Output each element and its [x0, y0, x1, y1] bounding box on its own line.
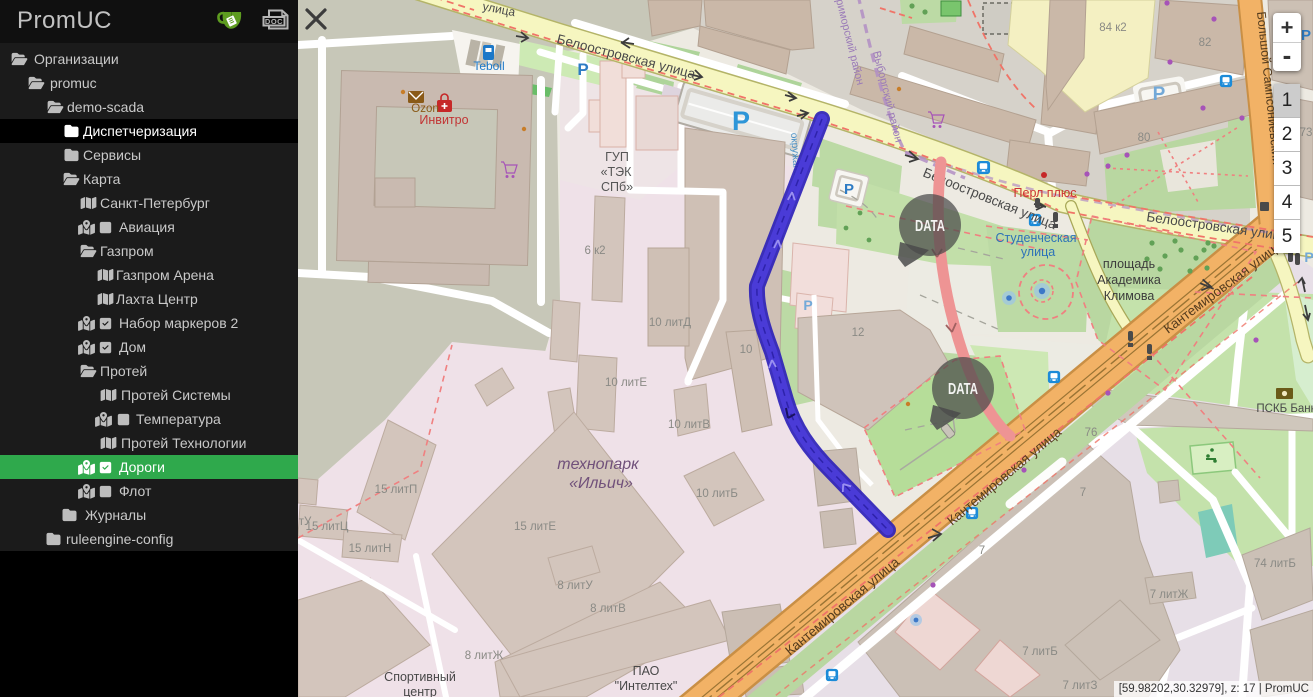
- svg-text:центр: центр: [403, 685, 437, 697]
- svg-text:82: 82: [1199, 37, 1212, 49]
- svg-text:73: 73: [1300, 127, 1313, 139]
- svg-text:P: P: [1304, 249, 1313, 265]
- svg-text:P: P: [1301, 27, 1311, 44]
- svg-text:Академика: Академика: [1097, 273, 1161, 287]
- svg-text:74 литБ: 74 литБ: [1254, 558, 1296, 570]
- svg-text:P: P: [577, 60, 588, 79]
- svg-text:8 литЖ: 8 литЖ: [465, 650, 504, 662]
- svg-text:Спортивный: Спортивный: [384, 670, 456, 684]
- svg-text:15 литЕ: 15 литЕ: [514, 521, 556, 533]
- svg-text:ПСКБ Банк: ПСКБ Банк: [1256, 403, 1313, 415]
- svg-text:84 к2: 84 к2: [1099, 22, 1126, 34]
- svg-text:ГУП: ГУП: [605, 150, 629, 164]
- svg-text:8 литВ: 8 литВ: [590, 603, 626, 615]
- svg-text:«Ильич»: «Ильич»: [569, 475, 633, 492]
- svg-text:Перл плюс: Перл плюс: [1014, 186, 1077, 200]
- svg-text:"Интелтех": "Интелтех": [615, 679, 678, 693]
- svg-text:10: 10: [740, 344, 753, 356]
- svg-text:DOC: DOC: [265, 17, 283, 26]
- svg-text:«ТЭК: «ТЭК: [601, 165, 633, 179]
- svg-text:15 литЦ: 15 литЦ: [306, 521, 349, 533]
- svg-text:10 литЕ: 10 литЕ: [605, 377, 647, 389]
- svg-text:7 литБ: 7 литБ: [1022, 646, 1058, 658]
- svg-text:тУ: тУ: [299, 516, 312, 528]
- svg-text:DATA: DATA: [948, 381, 978, 398]
- svg-text:7 литЖ: 7 литЖ: [1150, 589, 1189, 601]
- svg-text:76: 76: [1085, 427, 1098, 439]
- svg-text:DATA: DATA: [915, 218, 945, 235]
- svg-text:СПб»: СПб»: [601, 180, 633, 194]
- svg-text:площадь: площадь: [1103, 257, 1155, 271]
- svg-text:ПАО: ПАО: [633, 664, 660, 678]
- svg-text:8 литУ: 8 литУ: [557, 580, 593, 592]
- svg-text:P: P: [844, 181, 854, 198]
- svg-text:7: 7: [1080, 487, 1086, 499]
- svg-text:P: P: [803, 297, 812, 313]
- svg-text:7: 7: [979, 545, 985, 557]
- svg-text:15 литН: 15 литН: [349, 543, 392, 555]
- svg-text:12: 12: [852, 327, 865, 339]
- svg-text:P: P: [732, 106, 750, 136]
- svg-text:10 литВ: 10 литВ: [668, 419, 710, 431]
- svg-text:улица: улица: [1021, 245, 1055, 259]
- svg-text:7 литЗ: 7 литЗ: [1063, 680, 1098, 692]
- svg-text:технопарк: технопарк: [557, 456, 640, 473]
- svg-text:Teboil: Teboil: [473, 59, 504, 73]
- svg-text:Климова: Климова: [1104, 289, 1155, 303]
- svg-text:Студенческая: Студенческая: [995, 231, 1076, 245]
- svg-text:80: 80: [1138, 132, 1151, 144]
- svg-text:10 литД: 10 литД: [649, 317, 691, 329]
- svg-text:6 к2: 6 к2: [584, 245, 605, 257]
- svg-text:Инвитро: Инвитро: [419, 113, 468, 127]
- svg-text:P: P: [1153, 84, 1166, 105]
- svg-text:15 литП: 15 литП: [375, 484, 418, 496]
- svg-text:10 литБ: 10 литБ: [696, 488, 738, 500]
